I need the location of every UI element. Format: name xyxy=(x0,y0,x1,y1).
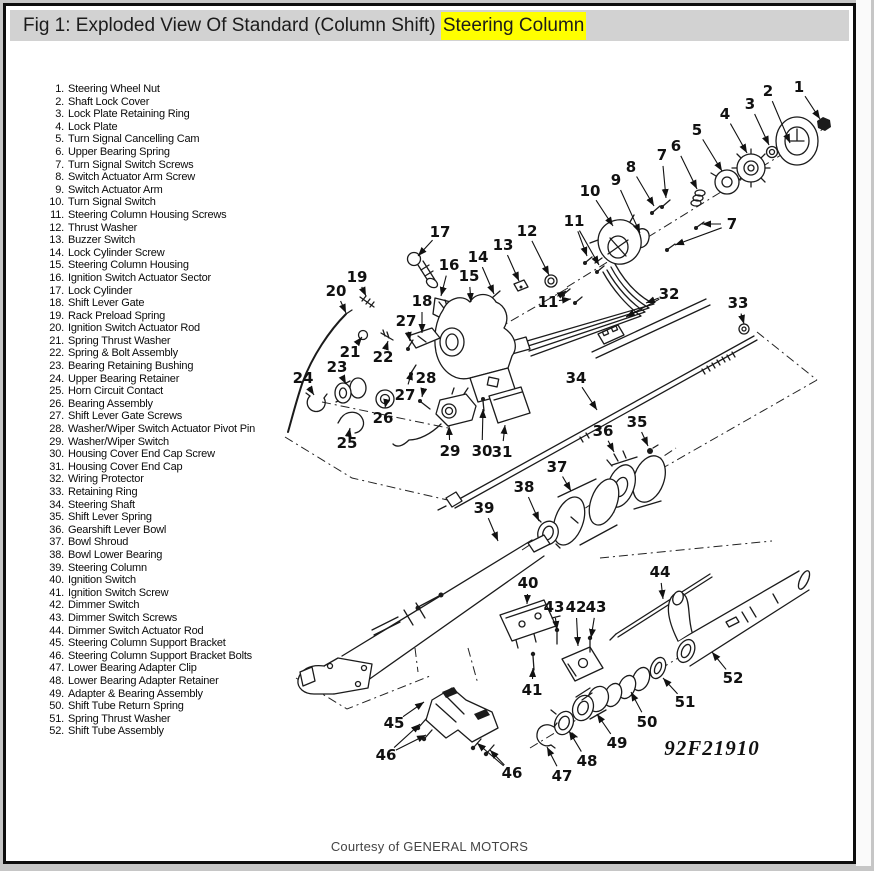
part-label: Lock Plate xyxy=(68,121,117,134)
parts-list-item: 32.Wiring Protector xyxy=(34,473,255,486)
parts-list: 1.Steering Wheel Nut2.Shaft Lock Cover3.… xyxy=(34,83,255,738)
parts-list-item: 42.Dimmer Switch xyxy=(34,599,255,612)
highlighted-term: Steering Column xyxy=(441,12,587,40)
part-number: 26. xyxy=(34,398,68,411)
part-label: Switch Actuator Arm Screw xyxy=(68,171,195,184)
part-label: Dimmer Switch xyxy=(68,599,139,612)
part-number: 9. xyxy=(34,184,68,197)
part-label: Spring & Bolt Assembly xyxy=(68,347,178,360)
credit-text: Courtesy of GENERAL MOTORS xyxy=(6,839,853,854)
part-number: 11. xyxy=(34,209,68,222)
part-number: 33. xyxy=(34,486,68,499)
parts-list-item: 14.Lock Cylinder Screw xyxy=(34,247,255,260)
part-number: 36. xyxy=(34,524,68,537)
part-label: Bearing Retaining Bushing xyxy=(68,360,193,373)
part-label: Steering Shaft xyxy=(68,499,135,512)
part-label: Shift Lever Spring xyxy=(68,511,152,524)
part-label: Shift Tube Return Spring xyxy=(68,700,184,713)
parts-list-item: 1.Steering Wheel Nut xyxy=(34,83,255,96)
parts-list-item: 48.Lower Bearing Adapter Retainer xyxy=(34,675,255,688)
parts-list-item: 13.Buzzer Switch xyxy=(34,234,255,247)
part-label: Rack Preload Spring xyxy=(68,310,165,323)
parts-list-item: 40.Ignition Switch xyxy=(34,574,255,587)
part-number: 50. xyxy=(34,700,68,713)
part-label: Shaft Lock Cover xyxy=(68,96,149,109)
part-label: Steering Column Housing xyxy=(68,259,189,272)
parts-list-item: 34.Steering Shaft xyxy=(34,499,255,512)
parts-list-item: 6.Upper Bearing Spring xyxy=(34,146,255,159)
part-number: 52. xyxy=(34,725,68,738)
part-label: Steering Column Support Bracket Bolts xyxy=(68,650,252,663)
part-number: 18. xyxy=(34,297,68,310)
parts-list-item: 51.Spring Thrust Washer xyxy=(34,713,255,726)
part-number: 5. xyxy=(34,133,68,146)
figure-title: Fig 1: Exploded View Of Standard (Column… xyxy=(23,15,441,37)
parts-list-item: 23.Bearing Retaining Bushing xyxy=(34,360,255,373)
parts-list-item: 9.Switch Actuator Arm xyxy=(34,184,255,197)
part-number: 34. xyxy=(34,499,68,512)
part-number: 6. xyxy=(34,146,68,159)
part-number: 48. xyxy=(34,675,68,688)
parts-list-item: 3.Lock Plate Retaining Ring xyxy=(34,108,255,121)
part-number: 23. xyxy=(34,360,68,373)
part-label: Washer/Wiper Switch xyxy=(68,436,169,449)
part-number: 1. xyxy=(34,83,68,96)
part-label: Steering Column Support Bracket xyxy=(68,637,226,650)
part-number: 39. xyxy=(34,562,68,575)
part-label: Spring Thrust Washer xyxy=(68,335,170,348)
parts-list-item: 18.Shift Lever Gate xyxy=(34,297,255,310)
part-label: Housing Cover End Cap xyxy=(68,461,182,474)
parts-list-item: 19.Rack Preload Spring xyxy=(34,310,255,323)
part-label: Adapter & Bearing Assembly xyxy=(68,688,203,701)
parts-list-item: 35.Shift Lever Spring xyxy=(34,511,255,524)
part-number: 41. xyxy=(34,587,68,600)
parts-list-item: 10.Turn Signal Switch xyxy=(34,196,255,209)
parts-list-item: 16.Ignition Switch Actuator Sector xyxy=(34,272,255,285)
part-number: 43. xyxy=(34,612,68,625)
part-label: Ignition Switch Actuator Sector xyxy=(68,272,211,285)
parts-list-item: 17.Lock Cylinder xyxy=(34,285,255,298)
part-label: Gearshift Lever Bowl xyxy=(68,524,166,537)
part-label: Lock Cylinder xyxy=(68,285,132,298)
part-number: 44. xyxy=(34,625,68,638)
part-label: Ignition Switch Actuator Rod xyxy=(68,322,200,335)
parts-list-item: 44.Dimmer Switch Actuator Rod xyxy=(34,625,255,638)
part-label: Upper Bearing Spring xyxy=(68,146,170,159)
part-label: Ignition Switch xyxy=(68,574,136,587)
parts-list-item: 15.Steering Column Housing xyxy=(34,259,255,272)
parts-list-item: 31.Housing Cover End Cap xyxy=(34,461,255,474)
parts-list-item: 46.Steering Column Support Bracket Bolts xyxy=(34,650,255,663)
part-number: 3. xyxy=(34,108,68,121)
parts-list-item: 29.Washer/Wiper Switch xyxy=(34,436,255,449)
parts-list-item: 25.Horn Circuit Contact xyxy=(34,385,255,398)
figure-frame: Fig 1: Exploded View Of Standard (Column… xyxy=(3,3,856,864)
parts-list-item: 47.Lower Bearing Adapter Clip xyxy=(34,662,255,675)
part-label: Horn Circuit Contact xyxy=(68,385,163,398)
part-label: Steering Wheel Nut xyxy=(68,83,160,96)
part-number: 17. xyxy=(34,285,68,298)
part-number: 16. xyxy=(34,272,68,285)
part-number: 40. xyxy=(34,574,68,587)
parts-list-item: 39.Steering Column xyxy=(34,562,255,575)
part-label: Bowl Lower Bearing xyxy=(68,549,162,562)
part-number: 4. xyxy=(34,121,68,134)
parts-list-item: 28.Washer/Wiper Switch Actuator Pivot Pi… xyxy=(34,423,255,436)
part-number: 24. xyxy=(34,373,68,386)
part-label: Lock Cylinder Screw xyxy=(68,247,164,260)
part-label: Retaining Ring xyxy=(68,486,137,499)
part-number: 46. xyxy=(34,650,68,663)
parts-list-item: 49.Adapter & Bearing Assembly xyxy=(34,688,255,701)
part-number: 15. xyxy=(34,259,68,272)
part-label: Shift Lever Gate xyxy=(68,297,144,310)
part-label: Spring Thrust Washer xyxy=(68,713,170,726)
part-number: 32. xyxy=(34,473,68,486)
part-label: Dimmer Switch Actuator Rod xyxy=(68,625,203,638)
part-label: Turn Signal Switch xyxy=(68,196,156,209)
part-label: Bowl Shroud xyxy=(68,536,128,549)
part-number: 12. xyxy=(34,222,68,235)
parts-list-item: 21.Spring Thrust Washer xyxy=(34,335,255,348)
part-label: Steering Column Housing Screws xyxy=(68,209,226,222)
part-number: 30. xyxy=(34,448,68,461)
part-label: Washer/Wiper Switch Actuator Pivot Pin xyxy=(68,423,255,436)
parts-list-item: 20.Ignition Switch Actuator Rod xyxy=(34,322,255,335)
part-label: Buzzer Switch xyxy=(68,234,135,247)
part-label: Switch Actuator Arm xyxy=(68,184,163,197)
parts-list-item: 52.Shift Tube Assembly xyxy=(34,725,255,738)
part-number: 35. xyxy=(34,511,68,524)
part-label: Shift Lever Gate Screws xyxy=(68,410,182,423)
part-number: 31. xyxy=(34,461,68,474)
parts-list-item: 7.Turn Signal Switch Screws xyxy=(34,159,255,172)
part-label: Lower Bearing Adapter Retainer xyxy=(68,675,219,688)
part-label: Ignition Switch Screw xyxy=(68,587,168,600)
part-number: 7. xyxy=(34,159,68,172)
part-number: 49. xyxy=(34,688,68,701)
parts-list-item: 37.Bowl Shroud xyxy=(34,536,255,549)
part-number: 37. xyxy=(34,536,68,549)
part-label: Turn Signal Switch Screws xyxy=(68,159,193,172)
parts-list-item: 2.Shaft Lock Cover xyxy=(34,96,255,109)
parts-list-item: 12.Thrust Washer xyxy=(34,222,255,235)
part-number: 42. xyxy=(34,599,68,612)
part-number: 8. xyxy=(34,171,68,184)
part-number: 2. xyxy=(34,96,68,109)
part-label: Turn Signal Cancelling Cam xyxy=(68,133,199,146)
figure-title-bar: Fig 1: Exploded View Of Standard (Column… xyxy=(10,10,849,41)
part-number: 21. xyxy=(34,335,68,348)
parts-list-item: 27.Shift Lever Gate Screws xyxy=(34,410,255,423)
part-label: Shift Tube Assembly xyxy=(68,725,164,738)
part-number: 45. xyxy=(34,637,68,650)
parts-list-item: 43.Dimmer Switch Screws xyxy=(34,612,255,625)
part-label: Lower Bearing Adapter Clip xyxy=(68,662,197,675)
part-label: Steering Column xyxy=(68,562,147,575)
part-label: Lock Plate Retaining Ring xyxy=(68,108,190,121)
page-gutter xyxy=(856,0,871,866)
part-label: Housing Cover End Cap Screw xyxy=(68,448,215,461)
part-number: 10. xyxy=(34,196,68,209)
parts-list-item: 33.Retaining Ring xyxy=(34,486,255,499)
part-number: 28. xyxy=(34,423,68,436)
part-label: Bearing Assembly xyxy=(68,398,153,411)
parts-list-item: 26.Bearing Assembly xyxy=(34,398,255,411)
parts-list-item: 36.Gearshift Lever Bowl xyxy=(34,524,255,537)
parts-list-item: 22.Spring & Bolt Assembly xyxy=(34,347,255,360)
parts-list-item: 41.Ignition Switch Screw xyxy=(34,587,255,600)
part-number: 20. xyxy=(34,322,68,335)
part-number: 47. xyxy=(34,662,68,675)
part-number: 51. xyxy=(34,713,68,726)
part-number: 13. xyxy=(34,234,68,247)
part-number: 14. xyxy=(34,247,68,260)
part-label: Dimmer Switch Screws xyxy=(68,612,177,625)
parts-list-item: 38.Bowl Lower Bearing xyxy=(34,549,255,562)
part-number: 22. xyxy=(34,347,68,360)
parts-list-item: 4.Lock Plate xyxy=(34,121,255,134)
part-number: 38. xyxy=(34,549,68,562)
part-label: Wiring Protector xyxy=(68,473,144,486)
parts-list-item: 30.Housing Cover End Cap Screw xyxy=(34,448,255,461)
part-number: 27. xyxy=(34,410,68,423)
part-number: 19. xyxy=(34,310,68,323)
parts-list-item: 45.Steering Column Support Bracket xyxy=(34,637,255,650)
parts-list-item: 50.Shift Tube Return Spring xyxy=(34,700,255,713)
parts-list-item: 24.Upper Bearing Retainer xyxy=(34,373,255,386)
parts-list-item: 8.Switch Actuator Arm Screw xyxy=(34,171,255,184)
parts-list-item: 5.Turn Signal Cancelling Cam xyxy=(34,133,255,146)
part-number: 25. xyxy=(34,385,68,398)
parts-list-item: 11.Steering Column Housing Screws xyxy=(34,209,255,222)
part-number: 29. xyxy=(34,436,68,449)
part-label: Thrust Washer xyxy=(68,222,137,235)
part-label: Upper Bearing Retainer xyxy=(68,373,179,386)
